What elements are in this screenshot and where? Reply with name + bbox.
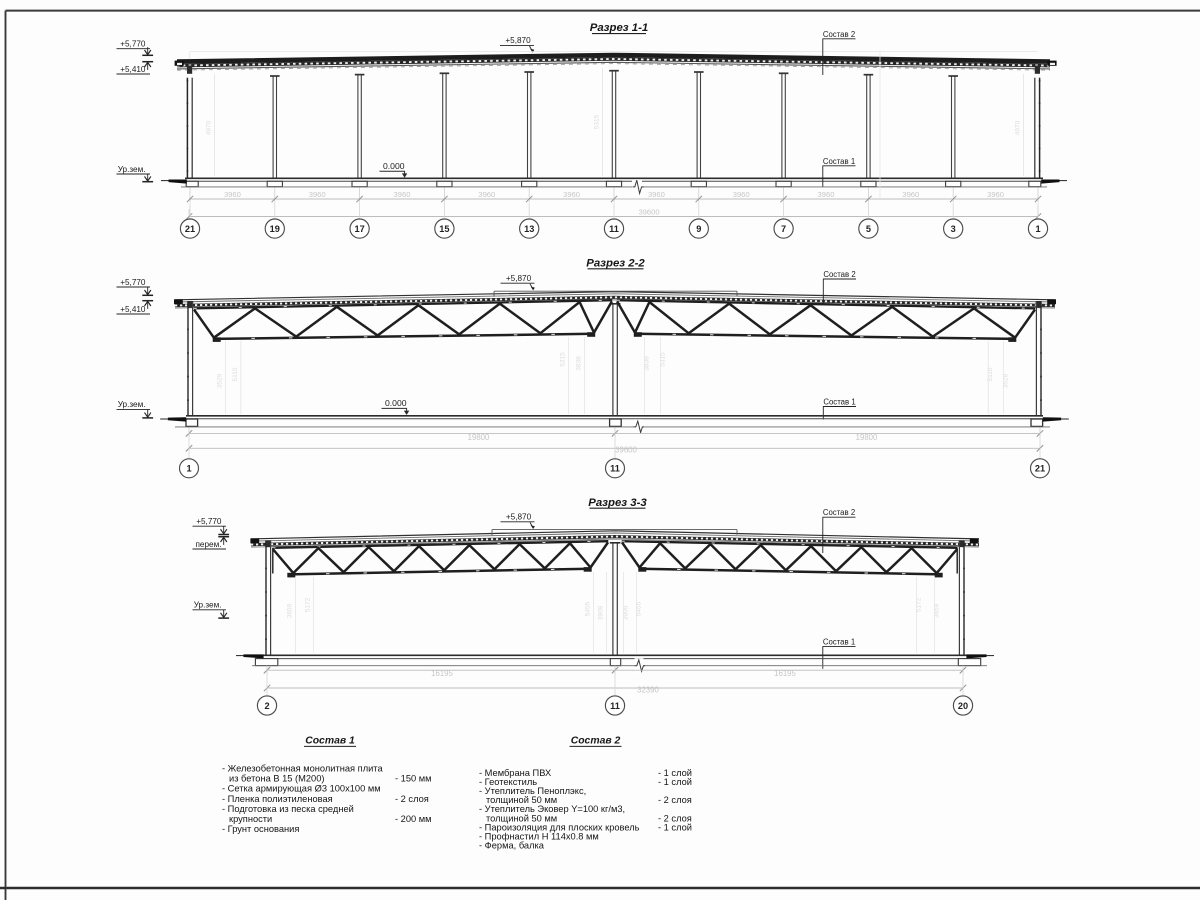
svg-text:- 1 слой: - 1 слой	[658, 777, 692, 787]
svg-text:39600: 39600	[615, 446, 637, 455]
svg-text:- Ферма, балка: - Ферма, балка	[479, 841, 545, 851]
svg-text:Ур.зем.: Ур.зем.	[118, 400, 146, 409]
svg-text:Состав 1: Состав 1	[823, 157, 855, 166]
svg-text:21: 21	[1035, 464, 1045, 474]
svg-text:3960: 3960	[563, 190, 580, 199]
svg-text:0.000: 0.000	[385, 398, 407, 408]
svg-text:- 2 слоя: - 2 слоя	[658, 795, 692, 805]
svg-text:3960: 3960	[818, 190, 835, 199]
svg-text:Состав 1: Состав 1	[305, 735, 355, 746]
svg-text:19800: 19800	[468, 433, 490, 442]
svg-text:из бетона В 15 (М200): из бетона В 15 (М200)	[229, 774, 325, 784]
svg-text:3960: 3960	[224, 190, 241, 199]
svg-text:крупности: крупности	[229, 814, 272, 824]
svg-text:5172: 5172	[305, 597, 312, 612]
svg-text:Состав 2: Состав 2	[823, 270, 855, 279]
svg-text:16195: 16195	[774, 669, 796, 678]
svg-text:3960: 3960	[902, 190, 919, 199]
svg-text:- Подготовка из песка средней: - Подготовка из песка средней	[222, 804, 354, 814]
svg-text:15: 15	[439, 224, 449, 234]
svg-text:Состав 2: Состав 2	[823, 30, 855, 39]
svg-text:- 2 слоя: - 2 слоя	[395, 794, 429, 804]
svg-text:+5,770: +5,770	[196, 517, 222, 526]
svg-text:17: 17	[354, 224, 364, 234]
svg-text:2: 2	[264, 701, 269, 711]
svg-text:Состав 1: Состав 1	[823, 637, 855, 646]
svg-text:3960: 3960	[987, 190, 1004, 199]
svg-text:9: 9	[696, 224, 701, 234]
svg-text:21: 21	[185, 224, 195, 234]
svg-text:+5,870: +5,870	[506, 274, 532, 283]
svg-text:11: 11	[610, 701, 620, 711]
svg-text:5455: 5455	[585, 601, 592, 616]
svg-text:Состав 1: Состав 1	[823, 398, 855, 407]
svg-text:3960: 3960	[733, 190, 750, 199]
svg-text:11: 11	[609, 224, 619, 234]
svg-text:Разрез 1-1: Разрез 1-1	[590, 22, 648, 34]
svg-text:+5,410: +5,410	[120, 65, 146, 74]
svg-text:3960: 3960	[394, 190, 411, 199]
svg-text:Состав 2: Состав 2	[571, 735, 621, 746]
svg-text:5315: 5315	[594, 114, 601, 129]
svg-text:- Сетка армирующая Ø3 100х100: - Сетка армирующая Ø3 100х100 мм	[222, 784, 381, 794]
svg-text:3: 3	[951, 224, 956, 234]
svg-text:- Железобетонная монолитная п: - Железобетонная монолитная плита	[222, 764, 383, 774]
svg-text:16195: 16195	[431, 669, 453, 678]
svg-text:+5,870: +5,870	[506, 513, 532, 522]
svg-text:19: 19	[270, 224, 280, 234]
svg-text:- 150 мм: - 150 мм	[395, 774, 432, 784]
svg-text:3838: 3838	[576, 356, 583, 371]
svg-text:1: 1	[1035, 224, 1040, 234]
svg-text:13: 13	[524, 224, 534, 234]
svg-text:Разрез 3-3: Разрез 3-3	[588, 497, 647, 509]
svg-text:5315: 5315	[560, 352, 567, 367]
svg-text:32390: 32390	[637, 686, 659, 695]
svg-text:4970: 4970	[206, 120, 213, 135]
svg-text:19800: 19800	[856, 433, 878, 442]
svg-text:Ур.зем.: Ур.зем.	[118, 165, 146, 174]
svg-text:+5,870: +5,870	[505, 36, 531, 45]
svg-text:Разрез 2-2: Разрез 2-2	[586, 257, 645, 269]
svg-text:0.000: 0.000	[383, 161, 405, 171]
svg-text:3659: 3659	[287, 603, 294, 618]
svg-text:3529: 3529	[217, 373, 224, 388]
svg-text:- Пленка полиэтиленовая: - Пленка полиэтиленовая	[222, 794, 333, 804]
svg-text:3960: 3960	[648, 190, 665, 199]
svg-text:+5,770: +5,770	[120, 278, 146, 287]
svg-text:+5,410: +5,410	[120, 305, 146, 314]
svg-text:Ур.зем.: Ур.зем.	[194, 601, 222, 610]
svg-text:3909: 3909	[598, 605, 605, 620]
svg-text:1: 1	[186, 464, 191, 474]
svg-text:39600: 39600	[638, 208, 659, 217]
svg-text:перем.: перем.	[196, 540, 222, 549]
svg-text:5110: 5110	[232, 367, 239, 381]
svg-text:4970: 4970	[1015, 120, 1022, 135]
svg-text:Состав 2: Состав 2	[823, 508, 855, 517]
svg-text:11: 11	[610, 464, 620, 474]
svg-text:- 1 слой: - 1 слой	[658, 822, 692, 832]
svg-text:20: 20	[958, 701, 968, 711]
svg-text:- Грунт основания: - Грунт основания	[222, 824, 299, 834]
svg-text:+5,770: +5,770	[120, 40, 146, 49]
svg-text:- 200 мм: - 200 мм	[395, 814, 432, 824]
svg-text:7: 7	[781, 224, 786, 234]
svg-text:5: 5	[866, 224, 871, 234]
svg-text:3960: 3960	[309, 190, 326, 199]
svg-text:3960: 3960	[478, 190, 495, 199]
